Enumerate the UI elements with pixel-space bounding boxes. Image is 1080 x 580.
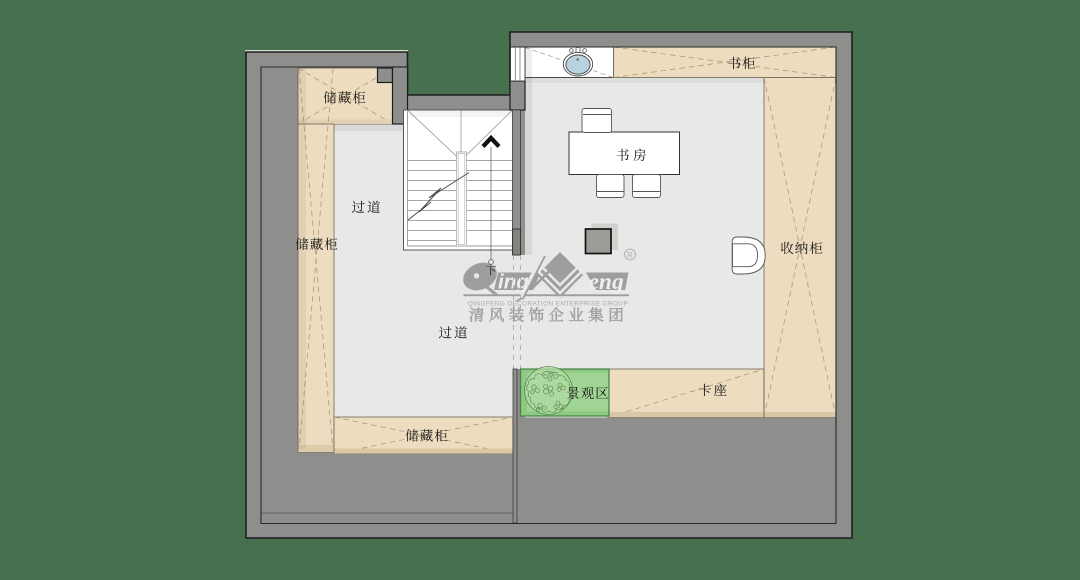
svg-text:景观区: 景观区 (566, 382, 610, 402)
svg-text:收纳柜: 收纳柜 (780, 237, 824, 257)
svg-text:储藏柜: 储藏柜 (405, 425, 449, 445)
svg-text:过道: 过道 (439, 322, 470, 342)
svg-text:过道: 过道 (352, 196, 383, 216)
svg-text:书房: 书房 (616, 144, 650, 164)
svg-text:卡座: 卡座 (698, 379, 729, 399)
svg-text:储藏柜: 储藏柜 (323, 87, 367, 107)
svg-text:书柜: 书柜 (728, 52, 757, 72)
svg-text:R: R (627, 251, 633, 260)
svg-text:下: 下 (486, 263, 497, 279)
svg-text:清风装饰企业集团: 清风装饰企业集团 (469, 304, 628, 326)
svg-text:eng: eng (589, 262, 625, 296)
svg-text:储藏柜: 储藏柜 (295, 233, 339, 253)
svg-text:ing: ing (498, 271, 529, 294)
